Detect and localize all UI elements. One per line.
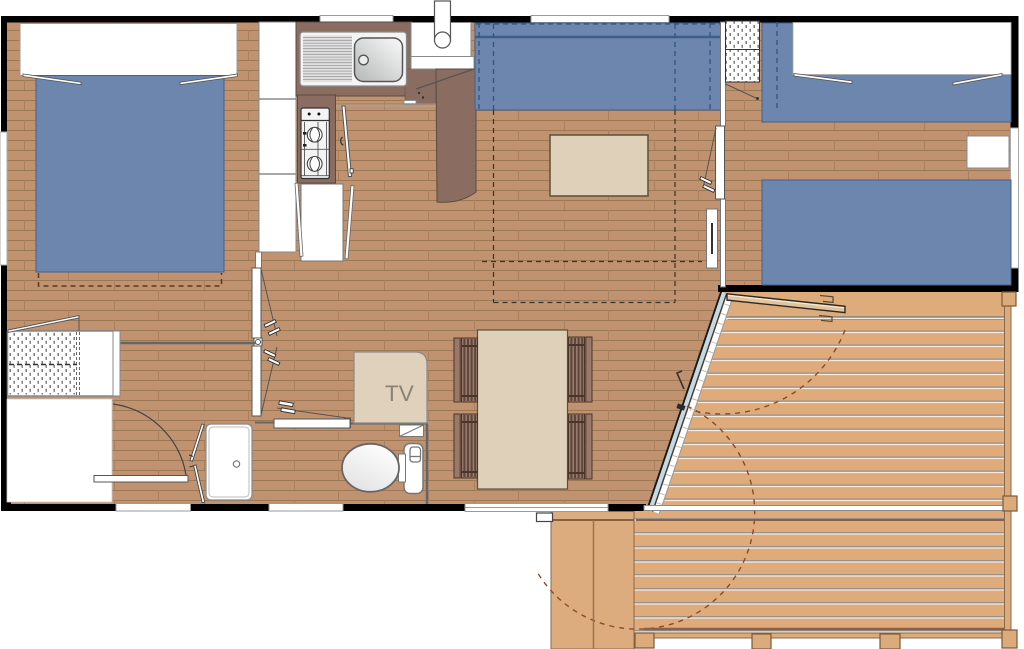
svg-text:TV: TV <box>385 381 414 406</box>
